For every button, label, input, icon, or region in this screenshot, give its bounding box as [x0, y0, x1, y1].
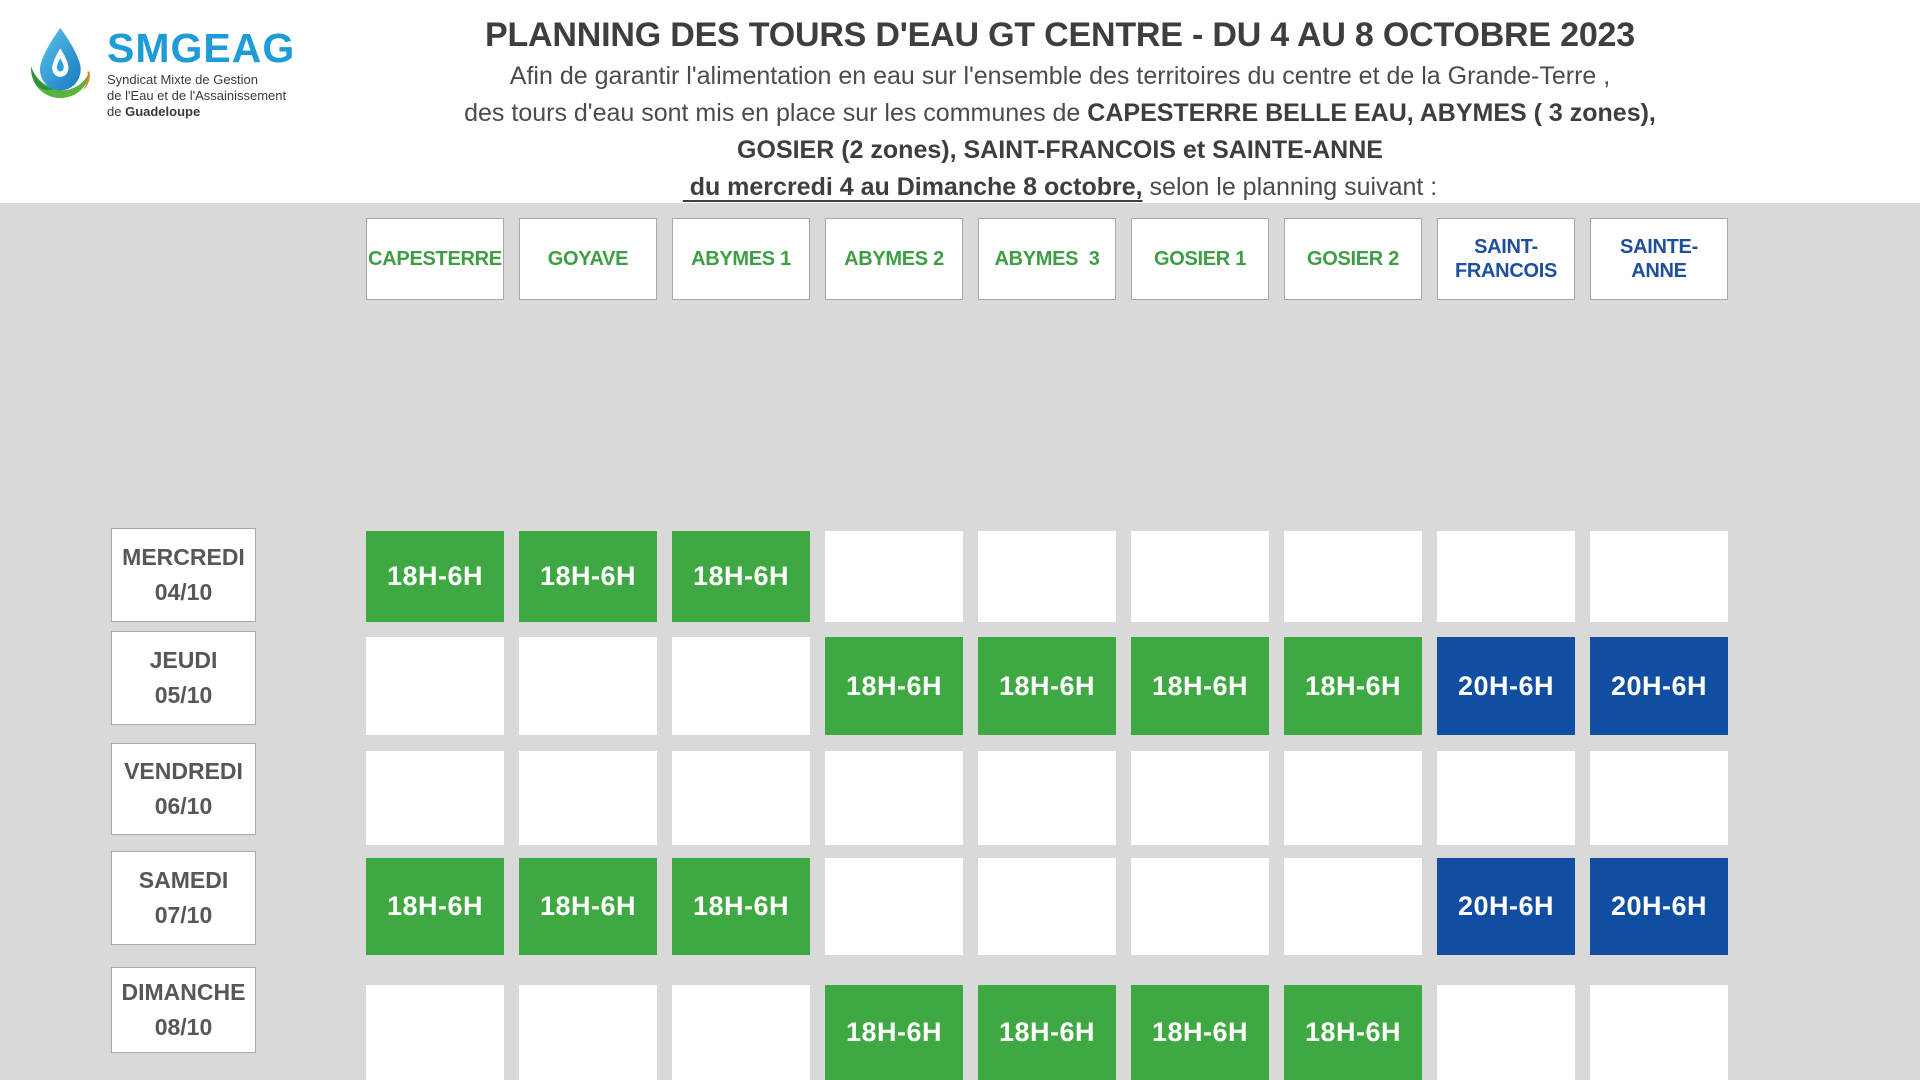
cell-vendredi-gosier-1: [1131, 751, 1269, 845]
cell-mercredi-capesterre: 18H-6H: [366, 531, 504, 622]
cell-jeudi-gosier-1: 18H-6H: [1131, 637, 1269, 735]
cell-samedi-gosier-2: [1284, 858, 1422, 955]
column-header-gosier-2: GOSIER 2: [1284, 218, 1422, 300]
cell-jeudi-sainte-anne: 20H-6H: [1590, 637, 1728, 735]
logo-text: SMGEAG Syndicat Mixte de Gestion de l'Ea…: [107, 12, 295, 120]
cell-vendredi-abymes-1: [672, 751, 810, 845]
cell-samedi-saint-francois: 20H-6H: [1437, 858, 1575, 955]
cell-mercredi-goyave: 18H-6H: [519, 531, 657, 622]
cell-mercredi-abymes-2: [825, 531, 963, 622]
cell-mercredi-gosier-1: [1131, 531, 1269, 622]
cell-mercredi-sainte-anne: [1590, 531, 1728, 622]
cell-vendredi-gosier-2: [1284, 751, 1422, 845]
intro-line-3-communes: GOSIER (2 zones), SAINT-FRANCOIS et SAIN…: [737, 136, 1383, 164]
cell-mercredi-saint-francois: [1437, 531, 1575, 622]
column-header-saint-francois: SAINT- FRANCOIS: [1437, 218, 1575, 300]
cell-samedi-abymes-1: 18H-6H: [672, 858, 810, 955]
cell-vendredi-abymes-3: [978, 751, 1116, 845]
smgeag-logo: SMGEAG Syndicat Mixte de Gestion de l'Ea…: [27, 12, 295, 120]
intro-line-2: des tours d'eau sont mis en place sur le…: [464, 99, 1087, 127]
row-header-mercredi: MERCREDI 04/10: [111, 528, 256, 622]
cell-jeudi-abymes-2: 18H-6H: [825, 637, 963, 735]
cell-dimanche-abymes-1: [672, 985, 810, 1080]
water-drop-leaf-icon: [27, 12, 95, 116]
cell-jeudi-abymes-3: 18H-6H: [978, 637, 1116, 735]
column-header-abymes-3: ABYMES 3: [978, 218, 1116, 300]
column-header-capesterre: CAPESTERRE: [366, 218, 504, 300]
row-header-samedi: SAMEDI 07/10: [111, 851, 256, 945]
cell-dimanche-abymes-3: 18H-6H: [978, 985, 1116, 1080]
intro-line-1: Afin de garantir l'alimentation en eau s…: [510, 62, 1610, 90]
header-text: PLANNING DES TOURS D'EAU GT CENTRE - DU …: [300, 0, 1820, 206]
cell-samedi-sainte-anne: 20H-6H: [1590, 858, 1728, 955]
cell-samedi-gosier-1: [1131, 858, 1269, 955]
cell-jeudi-capesterre: [366, 637, 504, 735]
cell-vendredi-abymes-2: [825, 751, 963, 845]
cell-samedi-abymes-3: [978, 858, 1116, 955]
row-header-jeudi: JEUDI 05/10: [111, 631, 256, 725]
cell-mercredi-abymes-3: [978, 531, 1116, 622]
cell-dimanche-gosier-1: 18H-6H: [1131, 985, 1269, 1080]
cell-vendredi-capesterre: [366, 751, 504, 845]
cell-dimanche-abymes-2: 18H-6H: [825, 985, 963, 1080]
cell-jeudi-gosier-2: 18H-6H: [1284, 637, 1422, 735]
column-header-abymes-2: ABYMES 2: [825, 218, 963, 300]
cell-dimanche-sainte-anne: [1590, 985, 1728, 1080]
intro-line-2-communes: CAPESTERRE BELLE EAU, ABYMES ( 3 zones),: [1087, 99, 1656, 127]
cell-vendredi-sainte-anne: [1590, 751, 1728, 845]
column-header-gosier-1: GOSIER 1: [1131, 218, 1269, 300]
logo-name: SMGEAG: [107, 28, 295, 68]
cell-dimanche-goyave: [519, 985, 657, 1080]
planning-poster: SMGEAG Syndicat Mixte de Gestion de l'Ea…: [0, 0, 1920, 1080]
page-title: PLANNING DES TOURS D'EAU GT CENTRE - DU …: [300, 0, 1820, 56]
column-header-sainte-anne: SAINTE- ANNE: [1590, 218, 1728, 300]
column-header-abymes-1: ABYMES 1: [672, 218, 810, 300]
cell-dimanche-capesterre: [366, 985, 504, 1080]
cell-mercredi-gosier-2: [1284, 531, 1422, 622]
cell-samedi-abymes-2: [825, 858, 963, 955]
cell-samedi-capesterre: 18H-6H: [366, 858, 504, 955]
cell-vendredi-goyave: [519, 751, 657, 845]
row-header-dimanche: DIMANCHE 08/10: [111, 967, 256, 1053]
cell-vendredi-saint-francois: [1437, 751, 1575, 845]
intro-paragraph: Afin de garantir l'alimentation en eau s…: [300, 58, 1820, 206]
cell-dimanche-saint-francois: [1437, 985, 1575, 1080]
intro-date-range: du mercredi 4 au Dimanche 8 octobre,: [683, 173, 1143, 201]
logo-tagline: Syndicat Mixte de Gestion de l'Eau et de…: [107, 72, 295, 120]
header-band: SMGEAG Syndicat Mixte de Gestion de l'Ea…: [0, 0, 1920, 203]
column-header-goyave: GOYAVE: [519, 218, 657, 300]
cell-jeudi-saint-francois: 20H-6H: [1437, 637, 1575, 735]
cell-dimanche-gosier-2: 18H-6H: [1284, 985, 1422, 1080]
cell-samedi-goyave: 18H-6H: [519, 858, 657, 955]
cell-jeudi-goyave: [519, 637, 657, 735]
row-header-vendredi: VENDREDI 06/10: [111, 743, 256, 835]
cell-jeudi-abymes-1: [672, 637, 810, 735]
cell-mercredi-abymes-1: 18H-6H: [672, 531, 810, 622]
intro-line-4-suffix: selon le planning suivant :: [1143, 173, 1438, 201]
